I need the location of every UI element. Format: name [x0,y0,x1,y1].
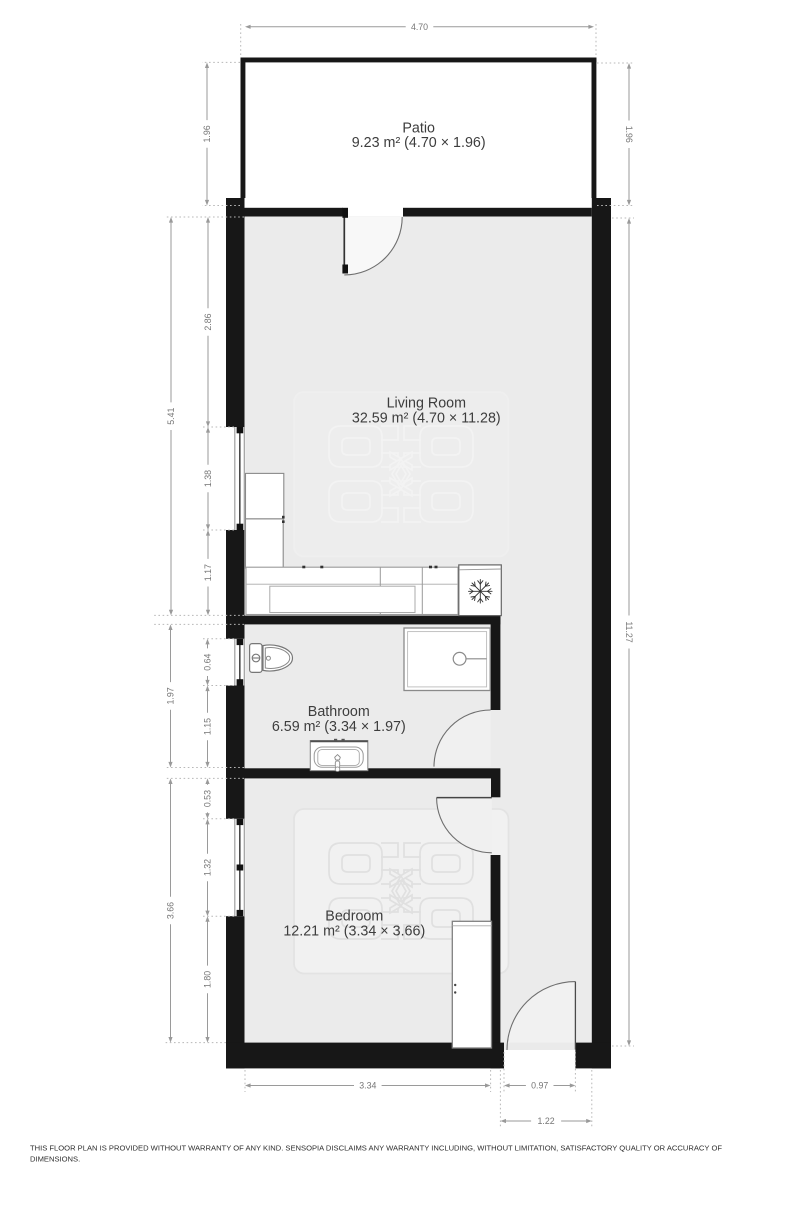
svg-text:9.23 m² (4.70 × 1.96): 9.23 m² (4.70 × 1.96) [352,135,486,151]
svg-text:Bathroom: Bathroom [308,704,370,720]
svg-text:3.66: 3.66 [166,902,176,919]
svg-text:11.27: 11.27 [624,621,634,642]
svg-text:4.70: 4.70 [411,22,428,32]
svg-text:1.17: 1.17 [203,564,213,581]
svg-text:5.41: 5.41 [166,408,176,425]
svg-text:DIMENSIONS.: DIMENSIONS. [30,1155,80,1164]
svg-text:1.32: 1.32 [203,859,213,876]
svg-text:2.86: 2.86 [203,313,213,330]
svg-text:3.34: 3.34 [359,1081,376,1091]
svg-text:Living Room: Living Room [387,396,466,412]
svg-text:1.97: 1.97 [166,687,176,704]
svg-text:12.21 m² (3.34 × 3.66): 12.21 m² (3.34 × 3.66) [283,924,425,940]
svg-text:1.96: 1.96 [624,126,634,143]
svg-text:1.38: 1.38 [203,470,213,487]
svg-text:6.59 m² (3.34 × 1.97): 6.59 m² (3.34 × 1.97) [272,719,406,735]
svg-text:1.15: 1.15 [203,718,213,735]
svg-text:Bedroom: Bedroom [325,909,383,925]
svg-text:0.53: 0.53 [203,790,213,807]
svg-text:0.64: 0.64 [203,653,213,670]
svg-text:1.96: 1.96 [202,125,212,142]
svg-text:THIS FLOOR PLAN IS PROVIDED WI: THIS FLOOR PLAN IS PROVIDED WITHOUT WARR… [30,1144,722,1153]
svg-text:1.22: 1.22 [538,1116,555,1126]
svg-text:1.80: 1.80 [203,971,213,988]
svg-text:0.97: 0.97 [531,1081,548,1091]
svg-text:32.59 m² (4.70 × 11.28): 32.59 m² (4.70 × 11.28) [352,410,501,426]
